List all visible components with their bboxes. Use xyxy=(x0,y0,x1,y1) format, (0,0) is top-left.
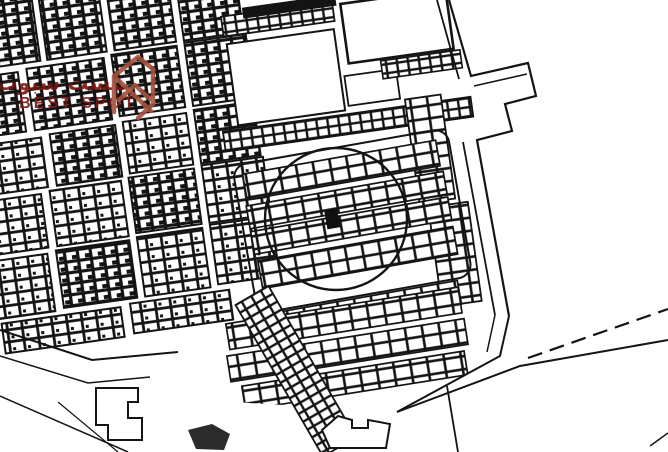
city-block xyxy=(0,137,48,196)
plot-map-image[interactable]: بيست سبوت BEST SPOT xyxy=(0,0,668,452)
city-block xyxy=(0,254,55,320)
city-block xyxy=(128,169,201,234)
city-block xyxy=(0,0,40,72)
city-block xyxy=(56,240,137,308)
cadastral-map-svg: بيست سبوت BEST SPOT xyxy=(0,0,668,452)
city-block xyxy=(0,194,48,256)
city-block xyxy=(50,181,129,246)
watermark-arabic-text: بيست سبوت xyxy=(0,71,127,95)
city-block xyxy=(50,125,123,186)
city-block xyxy=(137,228,211,297)
city-block xyxy=(104,0,176,50)
city-block xyxy=(123,113,194,173)
large-plot xyxy=(227,29,345,125)
city-block xyxy=(37,0,106,60)
